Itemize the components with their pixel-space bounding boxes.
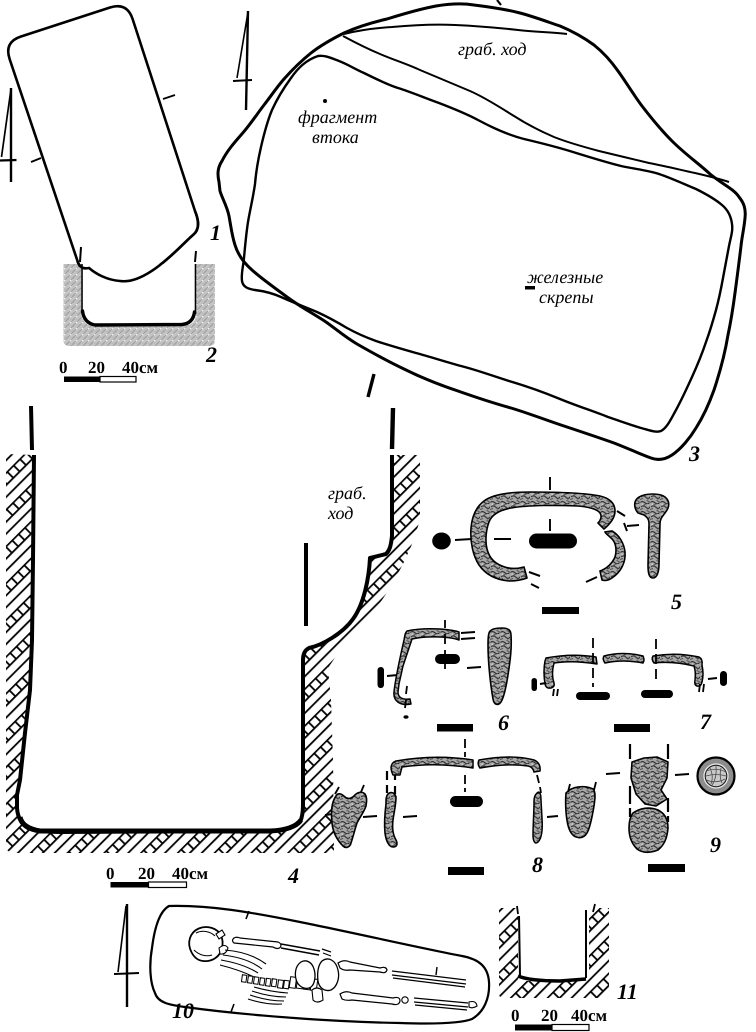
svg-text:граб.: граб. [328, 483, 367, 503]
svg-text:граб. ход: граб. ход [458, 39, 526, 59]
svg-text:0: 0 [511, 1006, 520, 1025]
svg-text:20: 20 [541, 1006, 558, 1025]
svg-text:скрепы: скрепы [539, 287, 594, 307]
svg-text:0: 0 [59, 358, 68, 377]
svg-text:3: 3 [688, 441, 700, 466]
svg-text:2: 2 [205, 342, 217, 367]
svg-text:1: 1 [210, 220, 221, 245]
svg-text:фрагмент: фрагмент [298, 107, 377, 127]
svg-text:20: 20 [138, 864, 155, 883]
svg-text:5: 5 [671, 589, 682, 614]
svg-text:9: 9 [710, 832, 721, 857]
svg-text:10: 10 [172, 998, 194, 1023]
svg-text:11: 11 [617, 979, 638, 1004]
svg-text:40см: 40см [122, 358, 159, 377]
svg-text:40см: 40см [172, 864, 209, 883]
svg-text:40см: 40см [571, 1006, 608, 1025]
svg-text:20: 20 [88, 358, 105, 377]
svg-text:втока: втока [312, 127, 359, 147]
svg-text:7: 7 [700, 709, 712, 734]
svg-text:4: 4 [287, 863, 299, 888]
svg-text:6: 6 [498, 710, 509, 735]
svg-text:ход: ход [327, 503, 353, 523]
svg-text:0: 0 [106, 864, 115, 883]
svg-text:железные: железные [527, 267, 603, 287]
svg-text:8: 8 [532, 852, 543, 877]
